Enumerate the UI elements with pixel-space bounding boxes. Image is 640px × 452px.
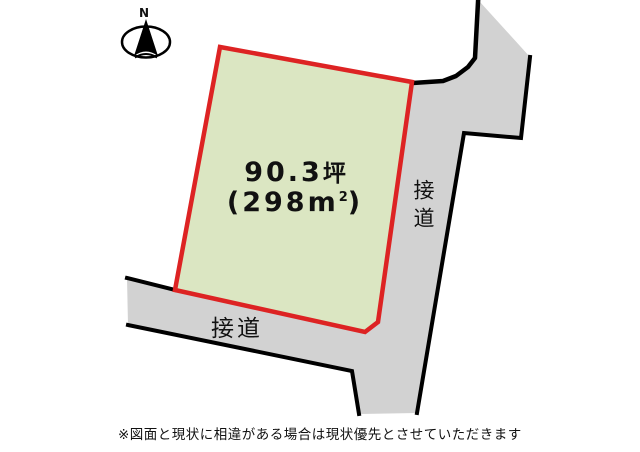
bottom-road-label: 接道 xyxy=(211,309,263,343)
parcel-area-label: 90.3坪 (298m2) xyxy=(210,158,380,218)
north-compass-icon xyxy=(122,19,170,58)
right-road-label: 接道 xyxy=(408,179,438,235)
parcel-area-sqm: (298m2) xyxy=(210,188,380,218)
tsubo-value: 90.3 xyxy=(244,157,323,188)
tsubo-unit: 坪 xyxy=(323,161,346,187)
land-plot-diagram: N 90.3坪 (298m2) 接道 接道 ※図面と現状に相違がある場合は現状優… xyxy=(0,0,640,452)
plot-map xyxy=(0,0,640,452)
sqm-close: ) xyxy=(348,187,363,218)
sqm-superscript: 2 xyxy=(339,190,348,205)
parcel-area-tsubo: 90.3坪 xyxy=(210,158,380,188)
north-label: N xyxy=(139,6,149,20)
sqm-open: (298m xyxy=(227,187,339,218)
disclaimer-text: ※図面と現状に相違がある場合は現状優先とさせていただきます xyxy=(118,423,522,443)
